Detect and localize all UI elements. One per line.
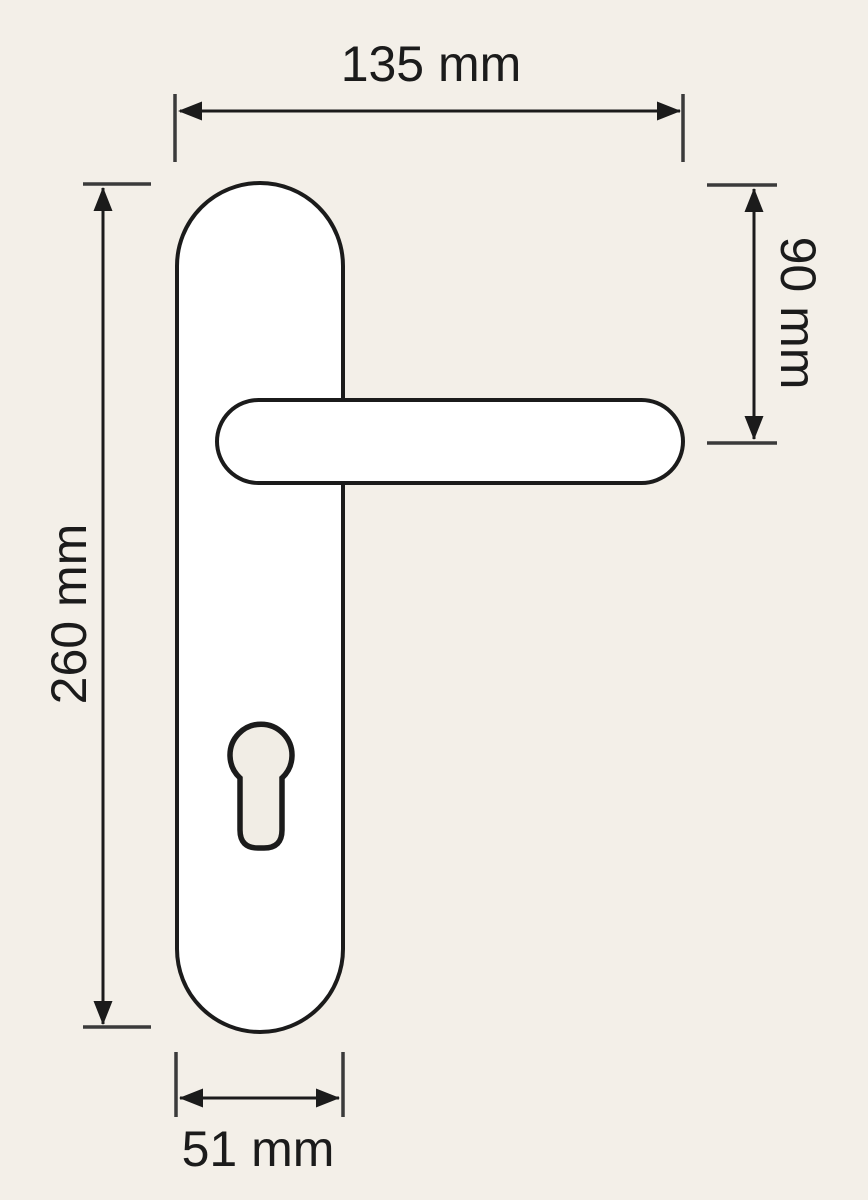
arrowhead-down-icon <box>94 1001 113 1025</box>
arrowhead-down-icon <box>745 416 764 440</box>
backplate-shape <box>177 183 343 1032</box>
technical-drawing-canvas: 135 mm 90 mm 260 mm 51 mm <box>0 0 868 1200</box>
dimension-label-plate-width: 51 mm <box>182 1121 335 1177</box>
dimension-plate-length: 260 mm <box>41 184 151 1027</box>
arrowhead-left-icon <box>178 102 202 121</box>
arrowhead-right-icon <box>657 102 681 121</box>
lever-handle-shape <box>217 400 683 483</box>
arrowhead-up-icon <box>94 187 113 211</box>
door-handle-shape-group <box>177 183 683 1032</box>
arrowhead-left-icon <box>179 1089 203 1108</box>
dimension-label-handle-axis: 90 mm <box>770 237 826 390</box>
dimension-label-overall-width: 135 mm <box>341 36 522 92</box>
arrowhead-right-icon <box>316 1089 340 1108</box>
dimension-plate-width: 51 mm <box>176 1052 343 1177</box>
dimension-label-plate-length: 260 mm <box>41 524 97 705</box>
arrowhead-up-icon <box>745 188 764 212</box>
dimension-handle-axis-from-top: 90 mm <box>707 185 826 443</box>
euro-cylinder-keyhole-shape <box>230 724 292 848</box>
dimension-overall-width: 135 mm <box>175 36 683 162</box>
door-handle-dimension-drawing: 135 mm 90 mm 260 mm 51 mm <box>0 0 868 1200</box>
